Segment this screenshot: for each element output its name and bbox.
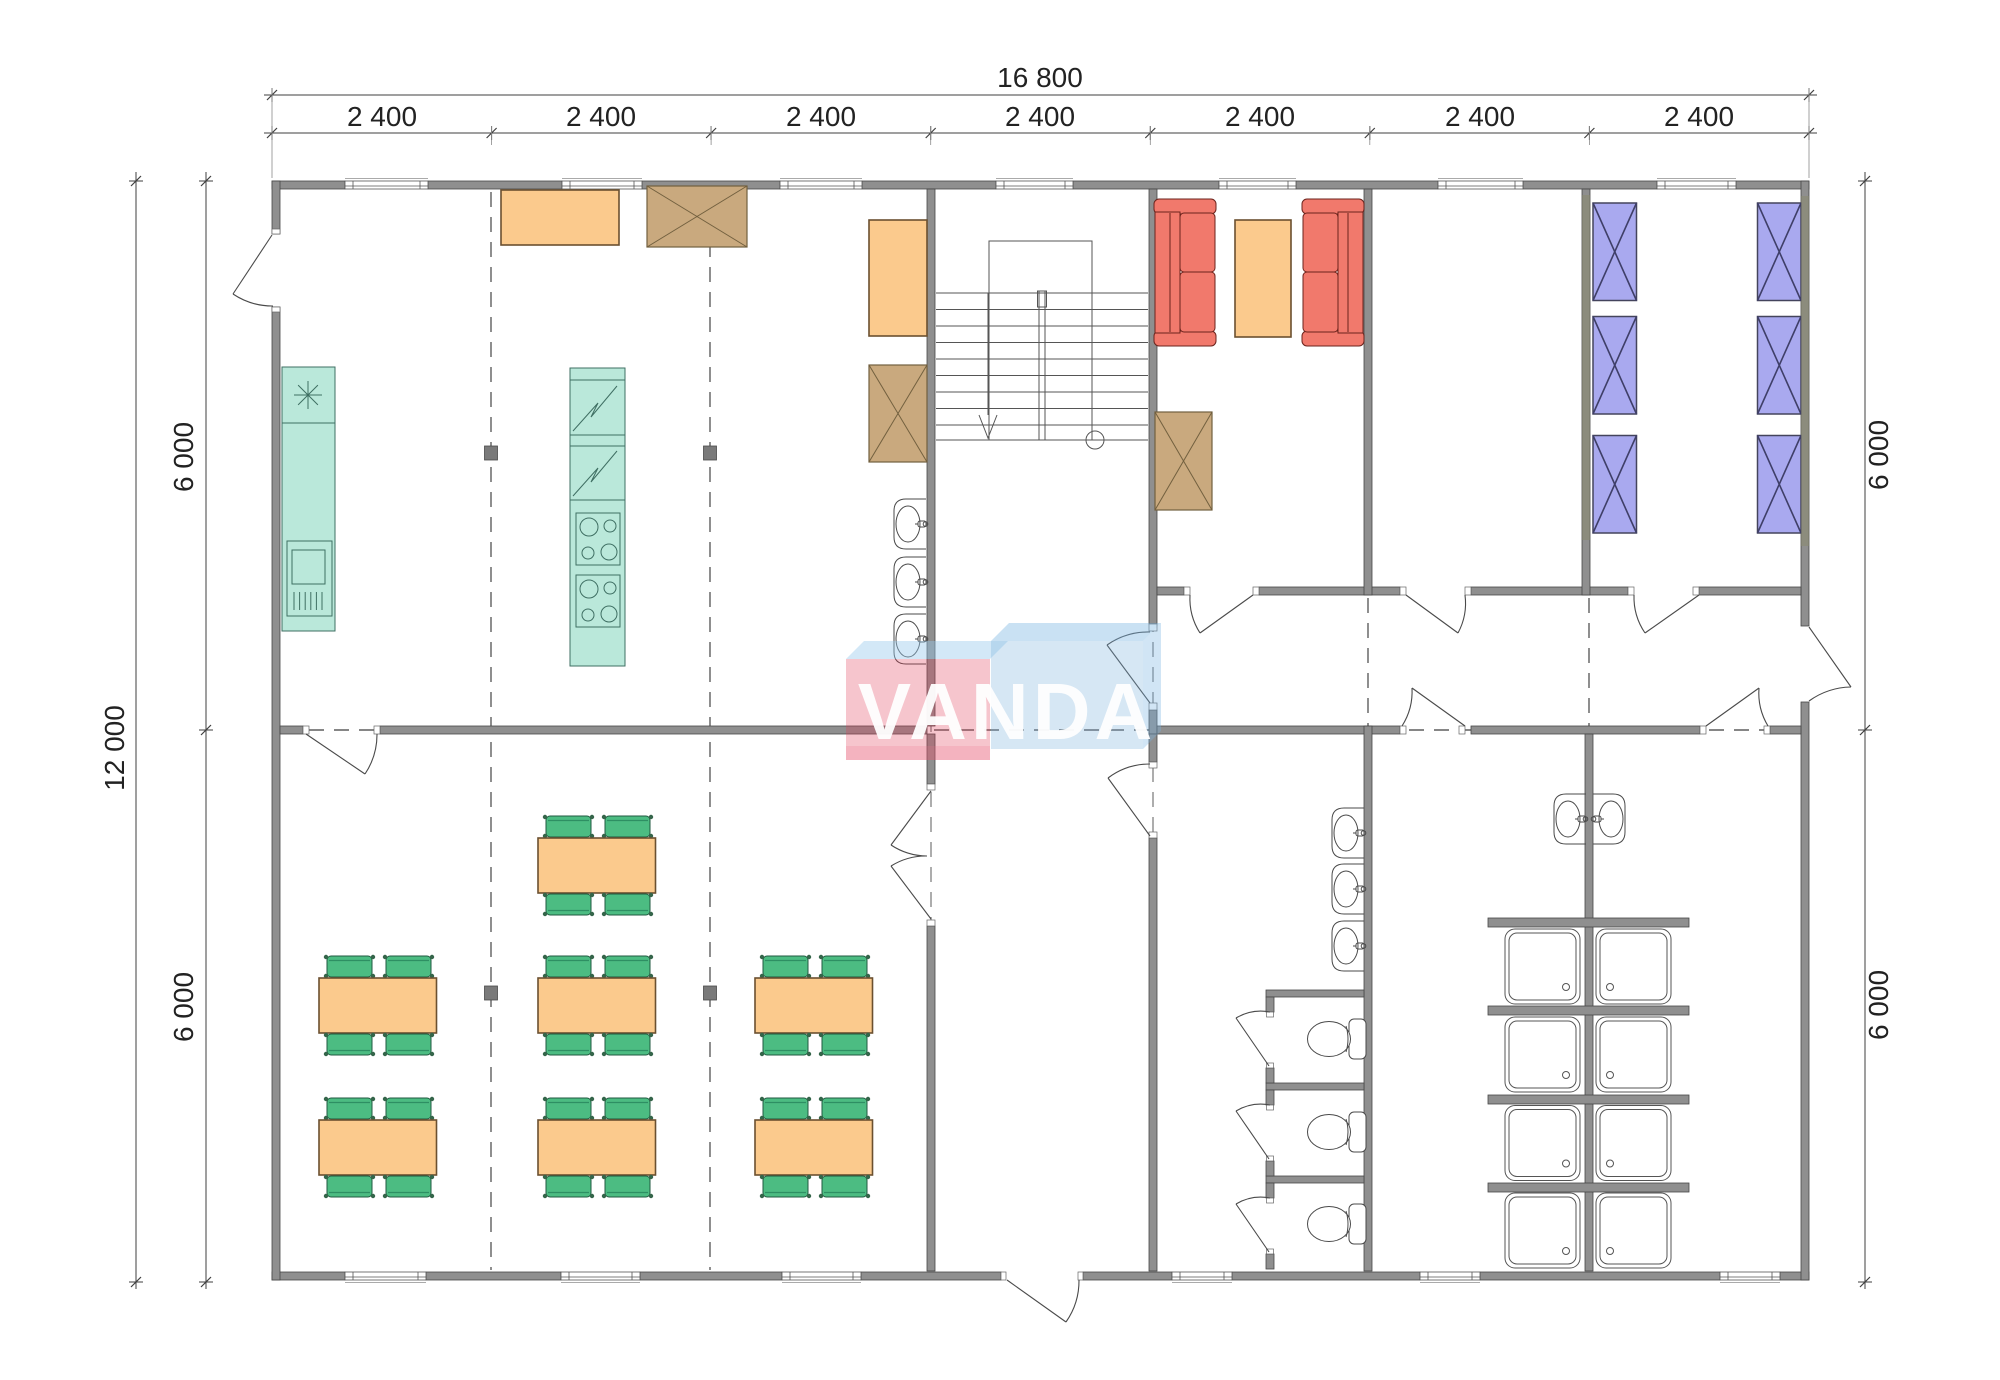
svg-text:2 400: 2 400	[1445, 101, 1515, 132]
svg-text:16 800: 16 800	[997, 62, 1083, 93]
svg-text:2 400: 2 400	[1225, 101, 1295, 132]
svg-text:2 400: 2 400	[1664, 101, 1734, 132]
svg-text:6 000: 6 000	[168, 972, 199, 1042]
svg-text:2 400: 2 400	[1005, 101, 1075, 132]
svg-text:6 000: 6 000	[1863, 970, 1894, 1040]
svg-text:6 000: 6 000	[168, 422, 199, 492]
svg-text:6 000: 6 000	[1863, 420, 1894, 490]
svg-text:2 400: 2 400	[786, 101, 856, 132]
svg-text:2 400: 2 400	[566, 101, 636, 132]
svg-text:VANDA: VANDA	[858, 667, 1157, 756]
svg-text:12 000: 12 000	[99, 705, 130, 791]
svg-text:2 400: 2 400	[347, 101, 417, 132]
